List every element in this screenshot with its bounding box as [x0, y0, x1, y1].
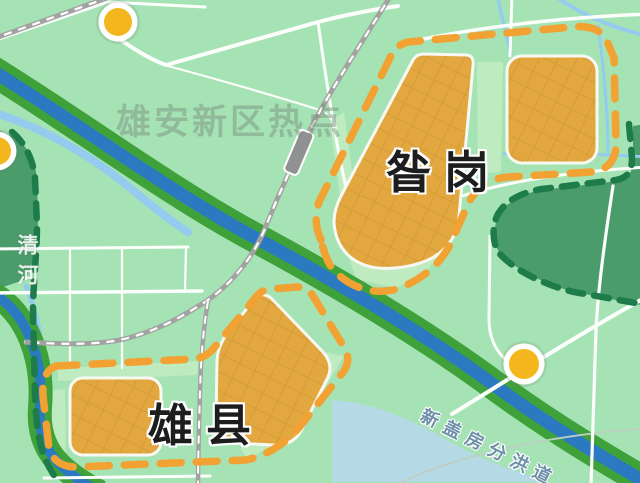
- watermark: 雄安新区热点: [116, 94, 344, 145]
- map-canvas[interactable]: 雄安新区热点 昝岗 雄县 清河 新盖房分洪道: [0, 0, 640, 483]
- label-zangang[interactable]: 昝岗: [386, 136, 502, 201]
- poi-marker-southeast[interactable]: [501, 341, 547, 387]
- poi-marker-top[interactable]: [96, 0, 140, 44]
- label-river: 清河: [12, 234, 42, 294]
- map-graphics: [0, 0, 640, 483]
- zangang-east-block: [507, 56, 597, 163]
- label-xiongxian[interactable]: 雄县: [148, 389, 264, 454]
